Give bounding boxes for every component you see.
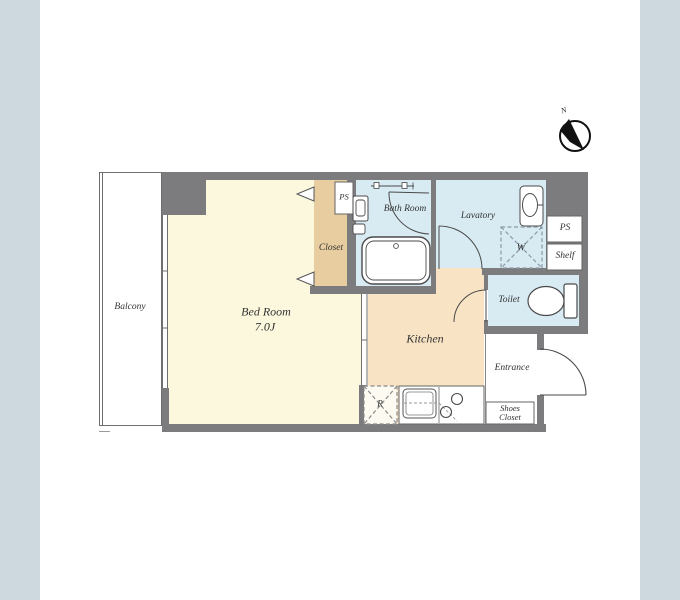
bedroom-window [162, 215, 168, 388]
shoes-closet-label-line2: Closet [499, 413, 521, 422]
compass-icon [560, 119, 590, 151]
entrance-door [540, 349, 586, 395]
toilet-fixture [528, 284, 577, 318]
kitchen-counter [399, 386, 484, 424]
balcony-label: Balcony [114, 303, 145, 313]
refrigerator-label: R [377, 399, 383, 408]
ps-side-label: PS [560, 224, 571, 234]
shelf-label: Shelf [556, 252, 575, 262]
bathroom-label: Bath Room [384, 205, 426, 215]
closet-label: Closet [319, 244, 343, 254]
bedroom-size-label: 7.0J [255, 321, 275, 334]
bedroom-kitchen-opening [361, 294, 368, 385]
entrance-label: Entrance [495, 364, 530, 374]
lavatory-label: Lavatory [461, 212, 495, 222]
bedroom-label: Bed Room [241, 306, 291, 319]
shoes-closet-label: Shoes Closet [499, 404, 521, 422]
floorplan-drawing [0, 0, 680, 600]
lavatory-sink [520, 186, 543, 226]
floorplan-page: N Balcony Bed Room 7.0J Closet PS Bath R… [0, 0, 680, 600]
ps-top-label: PS [339, 193, 348, 202]
bathtub [362, 237, 430, 284]
toilet-label: Toilet [498, 296, 519, 306]
washer-label: W [517, 242, 526, 253]
kitchen-label: Kitchen [406, 333, 443, 346]
